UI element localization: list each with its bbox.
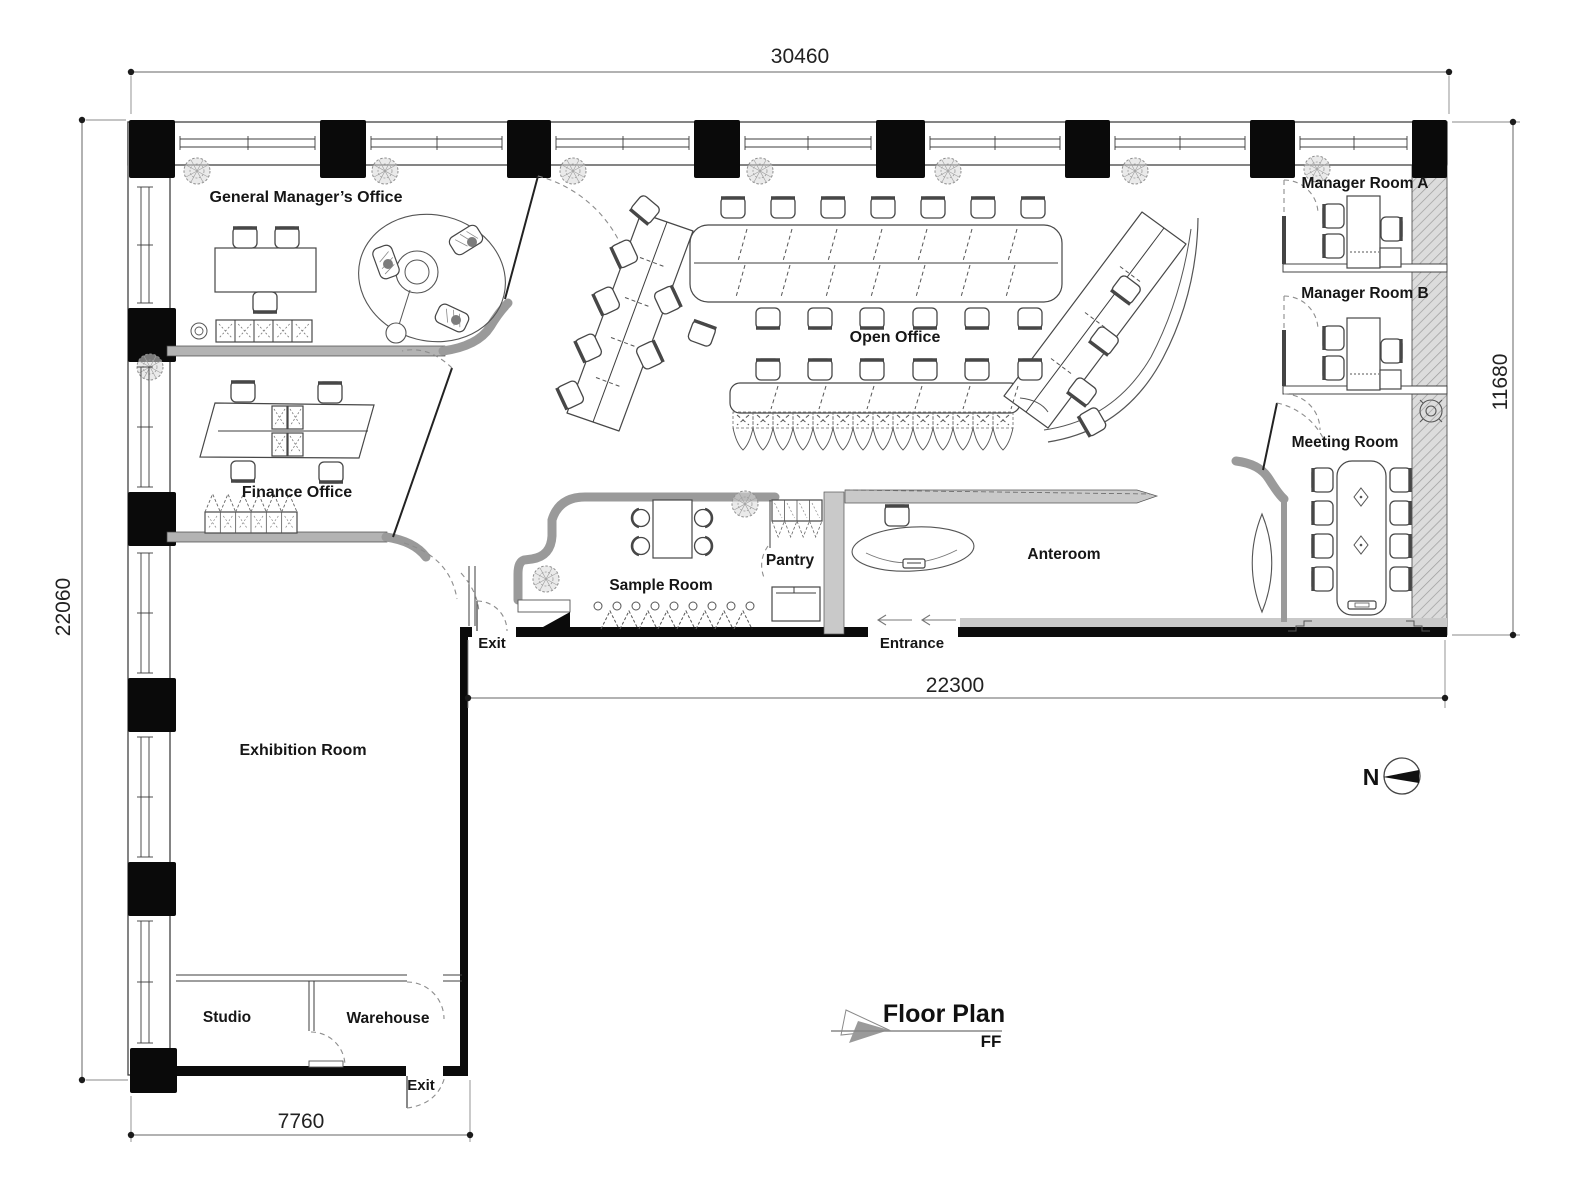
room-label-open-office: Open Office xyxy=(850,329,941,346)
room-label-manager-b: Manager Room B xyxy=(1301,285,1428,302)
meeting-room-furniture xyxy=(1337,461,1386,615)
gm-office-furniture xyxy=(191,199,519,357)
dim-overall-height: 22060 xyxy=(52,578,75,636)
compass-needle-icon xyxy=(1383,770,1419,783)
room-label-gm-office: General Manager’s Office xyxy=(210,189,403,206)
entrance-arrows xyxy=(878,615,956,625)
dim-overall-width: 30460 xyxy=(771,45,829,68)
room-label-pantry: Pantry xyxy=(766,552,815,569)
floor-plan-drawing: 30460 22060 11680 22300 7760 General Man… xyxy=(0,0,1583,1200)
door-label-exit-lower: Exit xyxy=(407,1077,435,1094)
sample-room-furniture xyxy=(653,500,692,558)
door-label-exit-upper: Exit xyxy=(478,635,506,652)
north-label: N xyxy=(1363,764,1380,790)
room-label-anteroom: Anteroom xyxy=(1027,546,1100,563)
north-compass: N xyxy=(1363,758,1420,794)
floor-plan-page: 30460 22060 11680 22300 7760 General Man… xyxy=(0,0,1583,1200)
exhibition-east-wall xyxy=(460,627,468,1075)
dim-bottom-width: 7760 xyxy=(278,1110,325,1133)
dim-inner-width: 22300 xyxy=(926,674,984,697)
dim-right-height: 11680 xyxy=(1489,354,1512,411)
room-label-finance: Finance Office xyxy=(242,484,352,501)
room-label-meeting: Meeting Room xyxy=(1292,434,1399,451)
anteroom-furniture xyxy=(851,524,975,574)
drawing-level: FF xyxy=(981,1032,1002,1051)
room-label-warehouse: Warehouse xyxy=(347,1010,430,1027)
room-label-manager-a: Manager Room A xyxy=(1302,175,1429,192)
room-label-sample: Sample Room xyxy=(609,577,712,594)
door-label-entrance: Entrance xyxy=(880,635,944,652)
finance-furniture xyxy=(200,403,374,533)
drawing-title: Floor Plan xyxy=(883,1000,1005,1028)
room-label-exhibition: Exhibition Room xyxy=(239,742,366,759)
room-label-studio: Studio xyxy=(203,1009,251,1026)
title-block: Floor Plan FF xyxy=(831,1000,1005,1051)
